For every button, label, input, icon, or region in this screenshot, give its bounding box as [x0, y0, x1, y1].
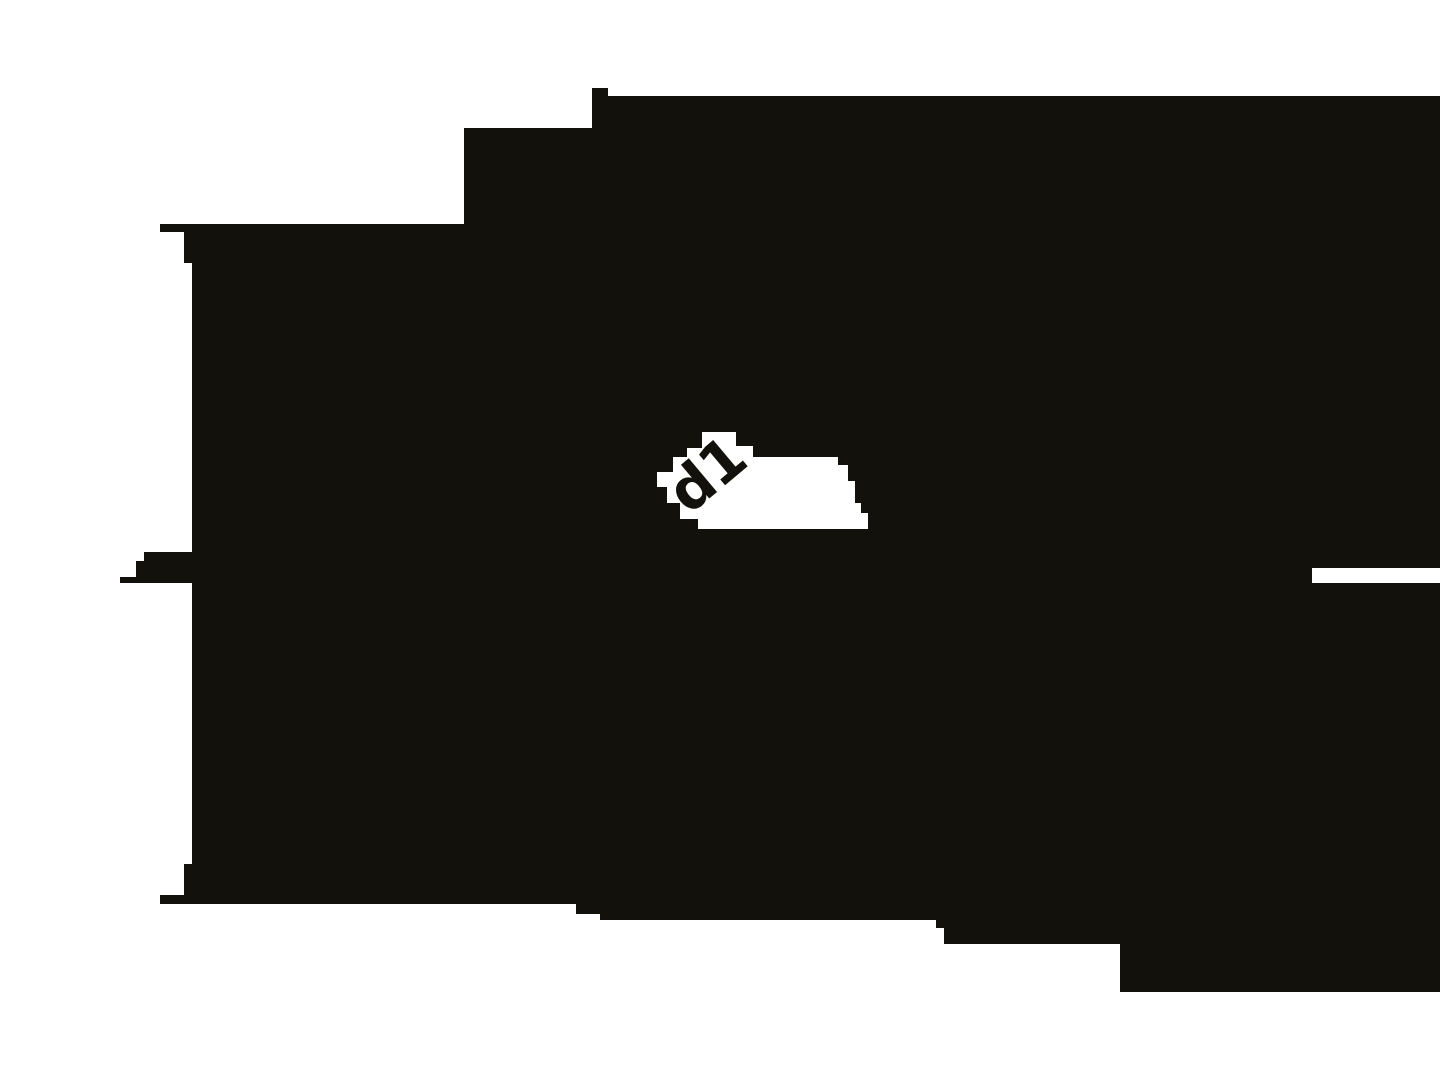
drawing-canvas: d1 — [0, 0, 1440, 1080]
drawing-viewport: d1 — [0, 0, 1440, 1080]
dimension-line-gap — [1312, 568, 1440, 583]
